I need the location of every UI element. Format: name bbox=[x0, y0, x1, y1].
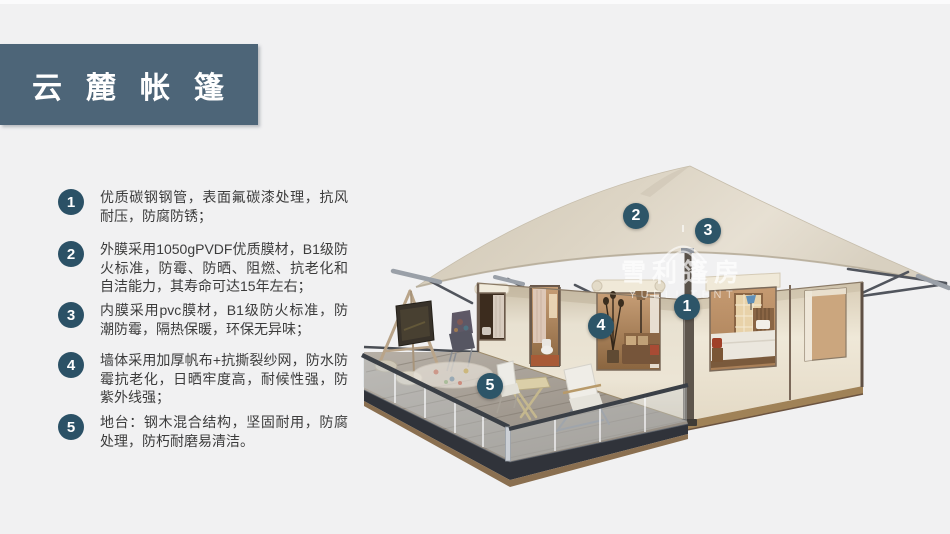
top-edge-strip bbox=[0, 0, 950, 4]
feature-text-2: 外膜采用1050gPVDF优质膜材，B1级防火标准，防霉、防晒、阻燃、抗老化和自… bbox=[100, 240, 348, 296]
callout-badge-3: 3 bbox=[695, 218, 721, 244]
feature-item-3: 3 内膜采用pvc膜材，B1级防火标准，防潮防霉，隔热保暖，环保无异味； bbox=[58, 301, 364, 338]
feature-text-5: 地台：钢木混合结构，坚固耐用，防腐处理，防朽耐磨易清洁。 bbox=[100, 413, 348, 450]
feature-number-badge-2: 2 bbox=[58, 241, 84, 267]
window-bedroom bbox=[706, 273, 780, 371]
feature-number-badge-4: 4 bbox=[58, 352, 84, 378]
door-opening bbox=[531, 286, 559, 366]
callout-badge-1: 1 bbox=[674, 294, 700, 320]
feature-number-badge-5: 5 bbox=[58, 414, 84, 440]
feature-item-4: 4 墙体采用加厚帆布+抗撕裂纱网，防水防霉抗老化，日晒牢度高，耐候性强，防紫外线… bbox=[58, 351, 364, 407]
callout-badge-4: 4 bbox=[588, 313, 614, 339]
feature-item-1: 1 优质碳钢钢管，表面氟碳漆处理，抗风耐压，防腐防锈； bbox=[58, 188, 364, 225]
callout-badge-5: 5 bbox=[477, 373, 503, 399]
feature-item-2: 2 外膜采用1050gPVDF优质膜材，B1级防火标准，防霉、防晒、阻燃、抗老化… bbox=[58, 240, 364, 296]
page-title: 云麓帐篷 bbox=[0, 63, 248, 107]
window-front-left bbox=[475, 284, 509, 340]
feature-item-5: 5 地台：钢木混合结构，坚固耐用，防腐处理，防朽耐磨易清洁。 bbox=[58, 413, 364, 450]
feature-text-4: 墙体采用加厚帆布+抗撕裂纱网，防水防霉抗老化，日晒牢度高，耐候性强，防紫外线强； bbox=[100, 351, 348, 407]
slide: 云麓帐篷 1 优质碳钢钢管，表面氟碳漆处理，抗风耐压，防腐防锈； 2 外膜采用1… bbox=[0, 0, 950, 534]
tent-illustration: 雪利篷房 YUELI TENT bbox=[360, 140, 950, 534]
feature-text-3: 内膜采用pvc膜材，B1级防火标准，防潮防霉，隔热保暖，环保无异味； bbox=[100, 301, 348, 338]
watermark-cn: 雪利篷房 bbox=[621, 258, 745, 287]
title-banner: 云麓帐篷 bbox=[0, 44, 258, 125]
feature-number-badge-3: 3 bbox=[58, 302, 84, 328]
feature-number-badge-1: 1 bbox=[58, 189, 84, 215]
callout-badge-2: 2 bbox=[623, 203, 649, 229]
window-right-far bbox=[805, 288, 846, 361]
feature-text-1: 优质碳钢钢管，表面氟碳漆处理，抗风耐压，防腐防锈； bbox=[100, 188, 348, 225]
